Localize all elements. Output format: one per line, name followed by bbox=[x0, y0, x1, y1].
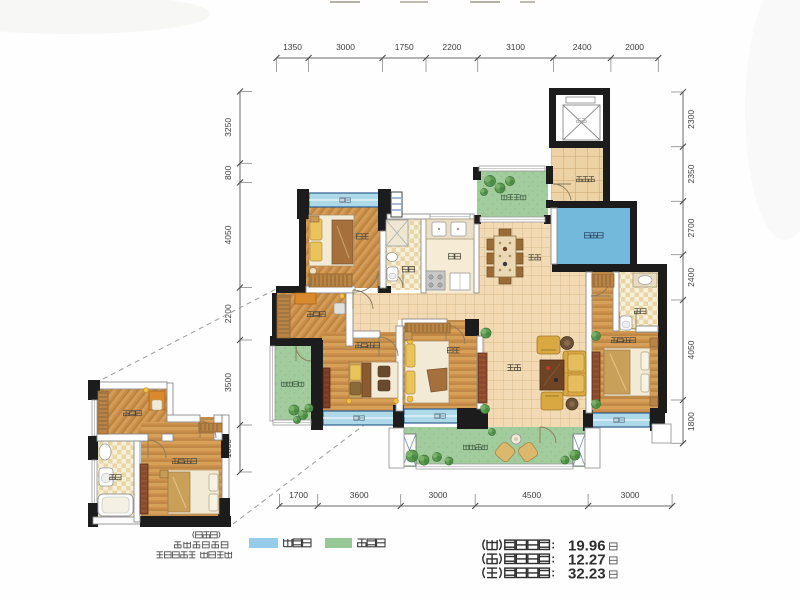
svg-text:1800: 1800 bbox=[686, 412, 696, 431]
svg-text:2700: 2700 bbox=[686, 218, 696, 237]
svg-text:1350: 1350 bbox=[283, 42, 302, 52]
svg-text:3000: 3000 bbox=[336, 42, 355, 52]
svg-text:3500: 3500 bbox=[223, 373, 233, 392]
svg-text:32.23: 32.23 bbox=[568, 566, 606, 583]
svg-text:2200: 2200 bbox=[442, 42, 461, 52]
svg-text:3100: 3100 bbox=[506, 42, 525, 52]
svg-text:3600: 3600 bbox=[350, 490, 369, 500]
svg-text:2400: 2400 bbox=[686, 268, 696, 287]
svg-text:1700: 1700 bbox=[289, 490, 308, 500]
svg-text:2200: 2200 bbox=[223, 304, 233, 323]
svg-text:1750: 1750 bbox=[395, 42, 414, 52]
svg-text:800: 800 bbox=[223, 166, 233, 180]
svg-text:2000: 2000 bbox=[625, 42, 644, 52]
svg-text:2350: 2350 bbox=[686, 164, 696, 183]
svg-text:4050: 4050 bbox=[223, 225, 233, 244]
svg-text:4500: 4500 bbox=[522, 490, 541, 500]
svg-text:2300: 2300 bbox=[686, 110, 696, 129]
svg-text:3000: 3000 bbox=[428, 490, 447, 500]
svg-text:4050: 4050 bbox=[686, 340, 696, 359]
svg-text:3250: 3250 bbox=[223, 118, 233, 137]
svg-text:2400: 2400 bbox=[573, 42, 592, 52]
svg-text:3000: 3000 bbox=[621, 490, 640, 500]
